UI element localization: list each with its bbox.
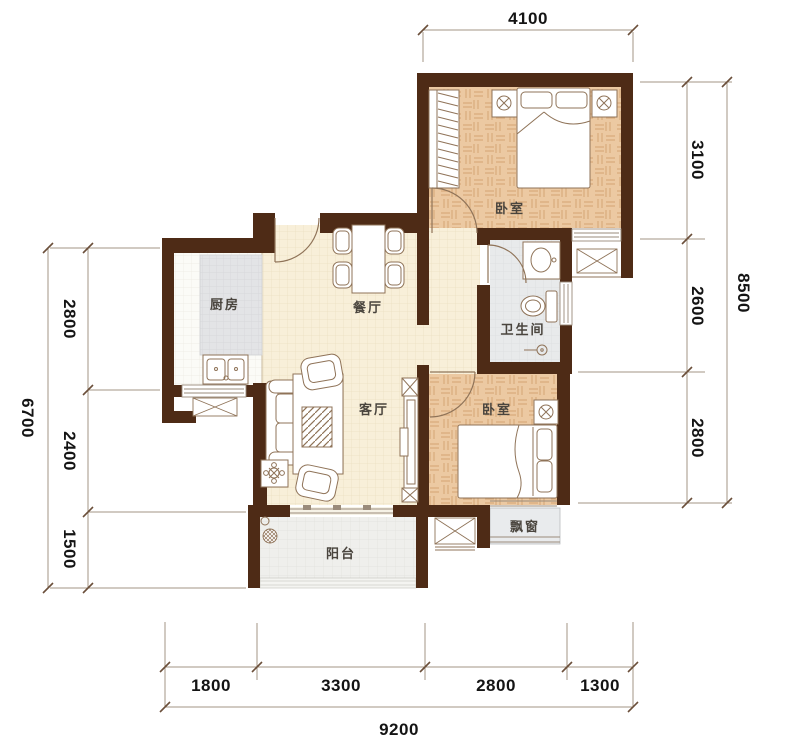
- balcony-floor-drain: [263, 529, 277, 543]
- bed-top: [517, 88, 590, 188]
- nightstand-top-left: [492, 90, 517, 117]
- sliding-door-stop-1: [303, 505, 311, 510]
- bed-bottom: [458, 425, 557, 498]
- wall-bedroom-top-north: [417, 73, 633, 87]
- label-dining: 餐厅: [352, 300, 383, 315]
- bedroom-top-window: [572, 229, 621, 241]
- dim-left-total-6700: 6700: [18, 398, 37, 438]
- wall-kitchen-southwest-cap: [162, 411, 196, 423]
- wall-bay-window-stub: [477, 505, 490, 548]
- label-bedroom-bottom: 卧室: [482, 402, 512, 417]
- kitchen-sink: [203, 355, 248, 384]
- wall-bathroom-south: [477, 362, 572, 374]
- kitchen-window: [182, 385, 246, 397]
- nightstand-top-right: [592, 90, 617, 117]
- wall-living-west: [253, 383, 267, 517]
- dim-left-2800: 2800: [60, 299, 79, 339]
- wall-bathroom-west-upper: [477, 228, 490, 245]
- wall-hall-west: [417, 233, 429, 325]
- dim-left-1500: 1500: [60, 529, 79, 569]
- dim-left-2400: 2400: [60, 431, 79, 471]
- label-bathroom: 卫生间: [500, 322, 545, 337]
- wall-bedroom-top-east: [621, 73, 633, 240]
- wall-bedroom-top-south: [477, 228, 572, 240]
- bathroom-window: [560, 282, 572, 325]
- dim-right-2800: 2800: [688, 418, 707, 458]
- wall-bathroom-east-upper: [560, 240, 572, 282]
- label-balcony: 阳台: [326, 546, 356, 561]
- wall-living-bedroom-divider: [417, 365, 429, 517]
- dim-bottom-3300: 3300: [321, 676, 361, 695]
- dining-table: [352, 225, 385, 293]
- plant-side-table: [261, 460, 288, 487]
- dim-bottom-total-9200: 9200: [379, 720, 419, 739]
- dining-chair: [385, 228, 404, 254]
- dim-right-3100: 3100: [688, 140, 707, 180]
- wall-bedroom-top-west: [417, 87, 429, 213]
- label-bedroom-top: 卧室: [495, 201, 525, 216]
- dining-chair: [333, 228, 352, 254]
- dim-top-4100: 4100: [508, 9, 548, 28]
- armchair-top: [300, 353, 345, 391]
- balcony-railing: [260, 578, 416, 588]
- wall-bedroom-bottom-east: [557, 374, 570, 505]
- sliding-door-stop-2: [333, 505, 341, 510]
- wall-bathroom-east-lower: [560, 325, 572, 374]
- dim-bottom-2800: 2800: [476, 676, 516, 695]
- wardrobe: [429, 90, 459, 188]
- dim-right-total-8500: 8500: [734, 273, 753, 313]
- label-kitchen: 厨房: [210, 297, 240, 312]
- ac-platform-south-lines: [435, 547, 475, 550]
- sliding-door-stop-3: [363, 505, 371, 510]
- wall-balcony-north-left: [248, 505, 290, 517]
- dim-right-2600: 2600: [688, 286, 707, 326]
- label-bay-window: 飘窗: [510, 519, 540, 534]
- tv-set: [400, 428, 408, 456]
- dim-bottom-1300: 1300: [580, 676, 620, 695]
- wall-platform-east: [621, 240, 633, 278]
- nightstand-bottom: [534, 400, 558, 424]
- floor-plan-sheet: 卧室 厨房 餐厅 卫生间 客厅 卧室 飘窗 阳台 4100 3100 2600 …: [0, 0, 800, 755]
- dining-chair: [333, 262, 352, 288]
- bathroom-sink: [523, 242, 560, 279]
- dining-chair: [385, 262, 404, 288]
- label-living: 客厅: [359, 402, 389, 417]
- wall-balcony-east: [416, 505, 428, 588]
- wall-bathroom-west-lower: [477, 285, 490, 374]
- wall-balcony-west: [248, 505, 260, 588]
- wall-kitchen-north: [162, 238, 273, 253]
- wall-kitchen-west: [162, 238, 174, 423]
- dim-bottom-1800: 1800: [191, 676, 231, 695]
- floor-plan-drawing: 卧室 厨房 餐厅 卫生间 客厅 卧室 飘窗 阳台 4100 3100 2600 …: [0, 0, 800, 755]
